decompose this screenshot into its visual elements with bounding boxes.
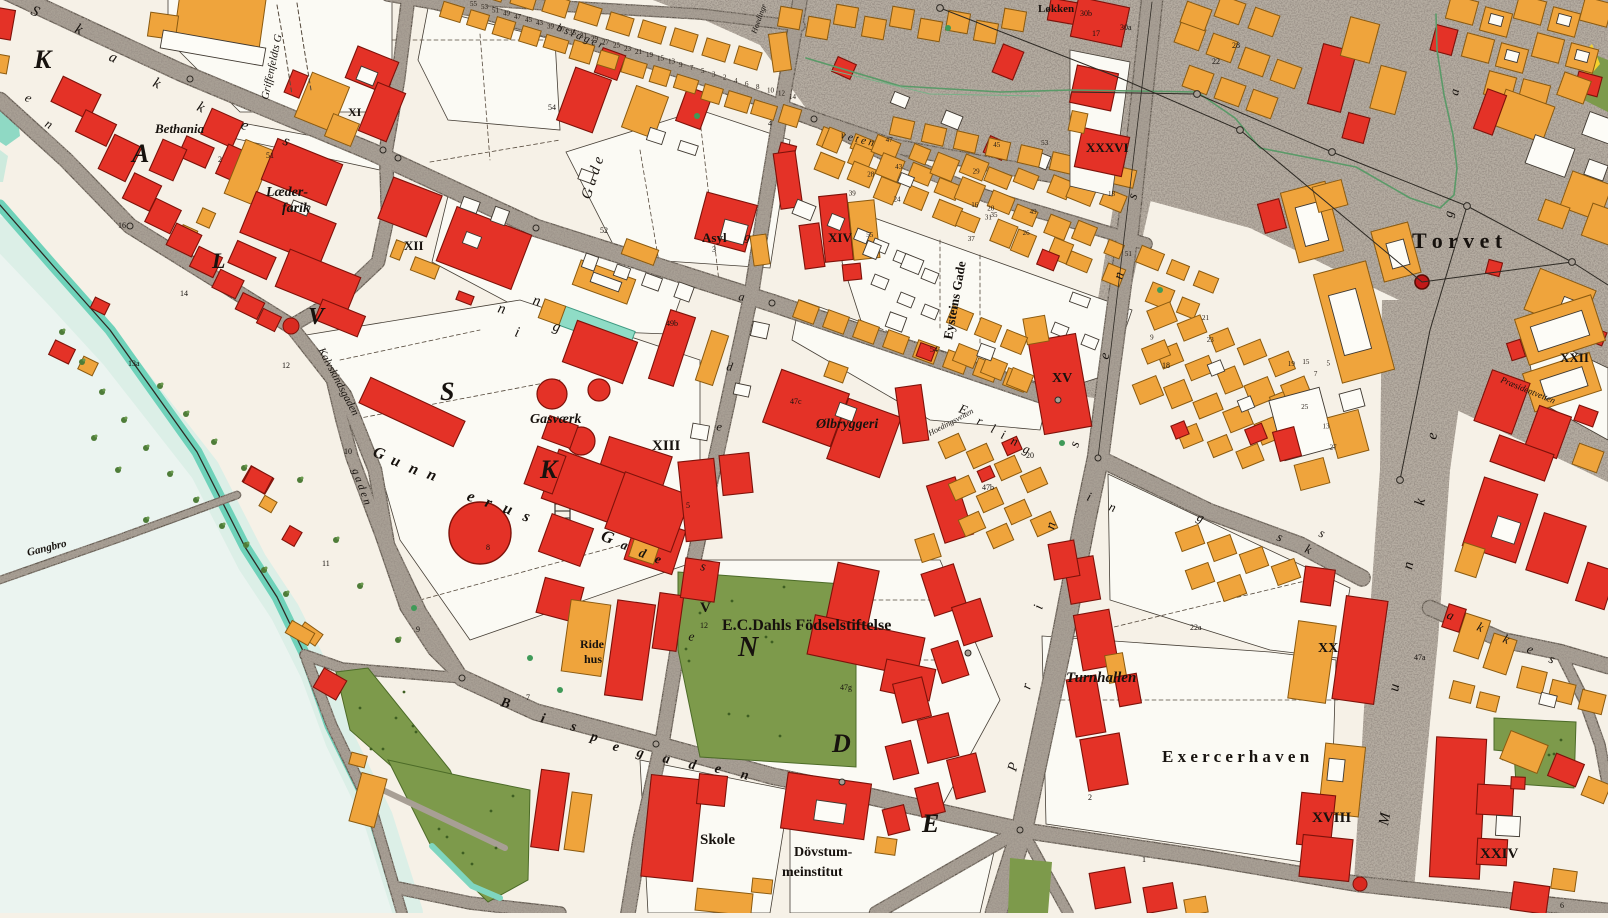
svg-text:Læder-: Læder- [265, 185, 308, 200]
svg-text:10: 10 [767, 86, 775, 94]
svg-text:14: 14 [789, 93, 797, 101]
svg-text:farik: farik [282, 201, 310, 216]
svg-text:meinstitut: meinstitut [782, 865, 843, 880]
svg-text:V: V [700, 600, 711, 616]
svg-text:47g: 47g [840, 683, 852, 692]
svg-text:8: 8 [486, 543, 490, 552]
svg-text:A: A [130, 139, 149, 168]
svg-text:37: 37 [558, 26, 566, 34]
svg-text:14: 14 [180, 289, 188, 298]
svg-text:25: 25 [613, 42, 621, 50]
svg-text:22a: 22a [1190, 623, 1202, 632]
svg-text:19: 19 [1288, 360, 1296, 368]
svg-text:49: 49 [503, 10, 511, 18]
svg-text:XVIII: XVIII [1312, 810, 1351, 826]
svg-text:Dövstum-: Dövstum- [794, 845, 853, 860]
svg-text:26: 26 [1023, 229, 1031, 237]
svg-text:12: 12 [700, 621, 708, 630]
svg-text:45: 45 [993, 141, 1001, 149]
svg-text:11: 11 [322, 559, 330, 568]
svg-text:51: 51 [1125, 250, 1133, 258]
svg-text:hus: hus [584, 652, 602, 666]
svg-text:15: 15 [1302, 358, 1310, 366]
svg-text:35: 35 [569, 29, 577, 37]
svg-text:4: 4 [734, 77, 738, 85]
svg-text:27: 27 [602, 38, 610, 46]
svg-text:18: 18 [1108, 190, 1116, 198]
svg-text:12: 12 [282, 361, 290, 370]
svg-text:13: 13 [1322, 423, 1330, 431]
svg-text:17: 17 [1092, 29, 1100, 38]
svg-text:5: 5 [701, 67, 705, 75]
svg-text:Ride: Ride [580, 637, 605, 651]
svg-text:10: 10 [344, 447, 352, 456]
svg-text:2: 2 [723, 74, 727, 82]
svg-text:23: 23 [624, 45, 632, 53]
svg-text:55: 55 [470, 0, 478, 8]
svg-text:4: 4 [768, 119, 772, 128]
svg-text:49b: 49b [666, 319, 678, 328]
svg-text:XIV: XIV [828, 230, 852, 245]
svg-text:39: 39 [547, 22, 555, 30]
svg-text:XII: XII [404, 238, 424, 253]
svg-text:47: 47 [886, 136, 894, 144]
svg-text:1: 1 [1142, 855, 1146, 864]
svg-text:15: 15 [657, 54, 665, 62]
svg-text:31: 31 [985, 213, 993, 221]
svg-text:Løkken: Løkken [1038, 3, 1074, 15]
svg-text:9: 9 [416, 625, 420, 634]
svg-text:XI: XI [348, 105, 362, 119]
svg-text:28: 28 [1232, 41, 1240, 50]
svg-text:13a: 13a [128, 359, 140, 368]
svg-text:22: 22 [1212, 57, 1220, 66]
svg-text:XXXVI: XXXVI [1086, 140, 1129, 155]
svg-text:12: 12 [778, 90, 786, 98]
svg-text:21: 21 [1202, 314, 1210, 322]
svg-text:49: 49 [1030, 208, 1038, 216]
svg-text:53: 53 [1041, 139, 1049, 147]
svg-text:53: 53 [481, 3, 489, 11]
svg-text:XV: XV [1052, 371, 1072, 386]
svg-text:16: 16 [118, 221, 126, 230]
svg-text:31: 31 [580, 32, 588, 40]
svg-text:13: 13 [668, 58, 676, 66]
svg-text:5: 5 [686, 501, 690, 510]
svg-text:51: 51 [266, 151, 274, 160]
svg-text:5: 5 [1326, 360, 1330, 368]
svg-text:54: 54 [930, 345, 938, 354]
svg-text:25: 25 [1301, 403, 1309, 411]
svg-text:47: 47 [514, 13, 522, 21]
svg-text:6: 6 [1560, 901, 1564, 910]
svg-text:28: 28 [867, 170, 875, 178]
svg-text:7: 7 [526, 693, 530, 702]
svg-text:21: 21 [635, 48, 643, 56]
svg-text:16: 16 [971, 201, 979, 209]
svg-text:30a: 30a [1120, 23, 1132, 32]
svg-text:43: 43 [536, 19, 544, 27]
svg-text:43: 43 [895, 163, 903, 171]
svg-text:19: 19 [646, 51, 654, 59]
svg-text:XX: XX [1318, 641, 1338, 656]
svg-text:29: 29 [973, 167, 981, 175]
svg-text:47a: 47a [1414, 653, 1426, 662]
svg-text:27: 27 [1330, 443, 1338, 451]
svg-text:30b: 30b [1080, 9, 1092, 18]
svg-text:L: L [211, 248, 225, 273]
svg-text:V: V [308, 304, 326, 330]
svg-text:3: 3 [712, 70, 716, 78]
svg-text:K: K [539, 455, 559, 484]
svg-text:E: E [921, 809, 939, 838]
svg-text:D: D [831, 729, 851, 758]
svg-text:K: K [33, 45, 53, 74]
svg-text:54: 54 [548, 103, 556, 112]
svg-text:55: 55 [866, 231, 874, 239]
svg-text:9: 9 [1150, 333, 1154, 341]
svg-text:45: 45 [525, 16, 533, 24]
svg-text:Ølbryggeri: Ølbryggeri [815, 417, 878, 432]
svg-text:52: 52 [600, 226, 608, 235]
svg-text:2: 2 [218, 155, 222, 164]
svg-text:24: 24 [894, 195, 902, 203]
svg-text:XIII: XIII [652, 438, 681, 454]
svg-text:7: 7 [1314, 370, 1318, 378]
svg-text:37: 37 [968, 235, 976, 243]
svg-text:20: 20 [1026, 451, 1034, 460]
svg-text:Gasværk: Gasværk [530, 412, 581, 427]
svg-text:51: 51 [492, 6, 500, 14]
svg-text:47c: 47c [790, 397, 802, 406]
svg-text:47b: 47b [982, 483, 994, 492]
svg-text:3: 3 [712, 245, 716, 254]
svg-text:Bethania: Bethania [154, 121, 205, 136]
svg-text:7: 7 [690, 64, 694, 72]
svg-text:N: N [737, 632, 760, 663]
svg-text:18: 18 [1162, 361, 1170, 370]
svg-text:T o r v e t: T o r v e t [1412, 228, 1503, 253]
svg-text:23: 23 [1207, 336, 1215, 344]
svg-text:Skole: Skole [700, 832, 735, 848]
svg-text:XXII: XXII [1560, 350, 1589, 365]
svg-text:XXIV: XXIV [1480, 846, 1519, 862]
svg-text:6: 6 [745, 80, 749, 88]
svg-text:Asyl: Asyl [702, 230, 727, 245]
svg-text:9: 9 [679, 61, 683, 69]
svg-text:E x e r c e r h a v e n: E x e r c e r h a v e n [1162, 747, 1310, 766]
svg-text:29: 29 [591, 35, 599, 43]
svg-text:2: 2 [1088, 793, 1092, 802]
svg-text:Turnhallen: Turnhallen [1066, 670, 1136, 686]
svg-text:39: 39 [849, 190, 857, 198]
svg-text:8: 8 [756, 83, 760, 91]
svg-text:S: S [440, 377, 454, 406]
